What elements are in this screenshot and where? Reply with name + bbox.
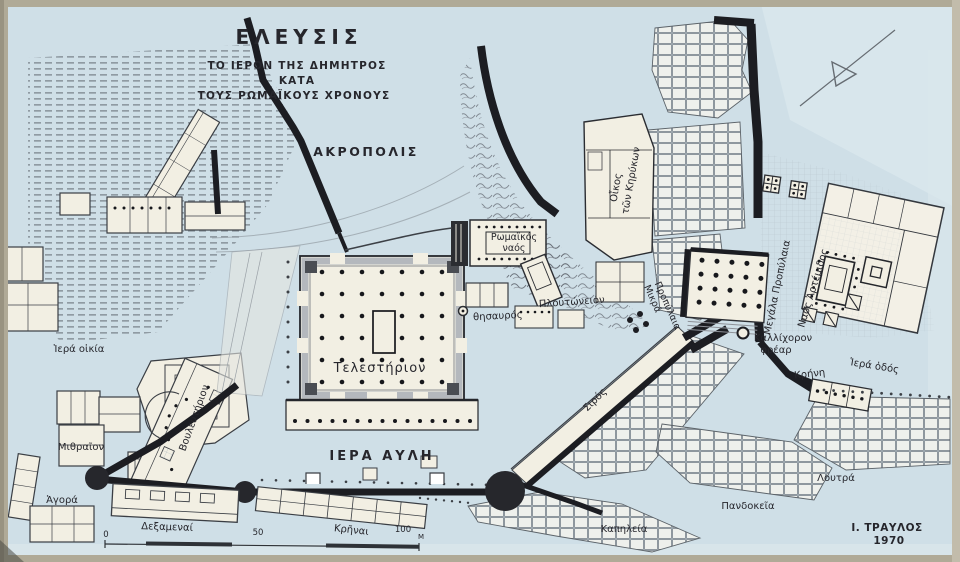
scale-unit: Μ: [418, 533, 424, 541]
credit-year: 1970: [873, 535, 904, 547]
map-subtitle-1: ΤΟ ΙΕΡΟΝ ΤΗΣ ΔΗΜΗΤΡΟΣ: [208, 60, 387, 72]
label-kallichoron-1: Καλλίχορον: [754, 332, 813, 344]
label-hiera-oikia: Ἱερά οἰκία: [54, 343, 105, 355]
label-telesterion: Τελεστήριον: [333, 361, 427, 376]
label-akropolis: ΑΚΡΟΠΟΛΙΣ: [313, 144, 419, 159]
dexamenai-building: [111, 484, 239, 523]
label-roman-temple-2: ναός: [503, 243, 526, 254]
scale-tick-100: 100: [395, 525, 411, 535]
plan-canvas: 0 50 100 Μ ΕΛΕΥΣΙΣ ΤΟ ΙΕΡΟΝ ΤΗΣ ΔΗΜΗΤΡΟΣ…: [0, 0, 960, 562]
label-mithraion: Μιθραῖον: [58, 442, 105, 453]
round-tower-west: [85, 466, 109, 490]
round-tower-main-gate: [485, 471, 525, 511]
altar-symbol-2: [789, 181, 807, 199]
label-kallichoron-2: φρέαρ: [760, 344, 791, 356]
label-roman-temple-1: Ρωμαϊκός: [491, 232, 537, 243]
scale-tick-0: 0: [103, 530, 108, 540]
kallichoron-well: [738, 328, 749, 339]
label-hiera-aule: ΙΕΡΑ ΑΥΛΗ: [329, 449, 434, 464]
anaktoron: [373, 311, 395, 353]
label-dexamenai: Δεξαμεναί: [141, 520, 194, 534]
eschara-altar: [861, 257, 892, 288]
label-loutra: Λουτρά: [817, 472, 855, 484]
eleusis-site-plan: 0 50 100 Μ ΕΛΕΥΣΙΣ ΤΟ ΙΕΡΟΝ ΤΗΣ ΔΗΜΗΤΡΟΣ…: [0, 0, 960, 562]
map-subtitle-3: ΤΟΥΣ ΡΩΜΑΪΚΟΥΣ ΧΡΟΝΟΥΣ: [198, 88, 391, 102]
scale-tick-50: 50: [253, 528, 264, 538]
altar-symbol-1: [763, 175, 781, 193]
map-title: ΕΛΕΥΣΙΣ: [235, 25, 362, 49]
label-agora: Ἀγορά: [46, 494, 78, 506]
label-pandokeia: Πανδοκεῖα: [721, 501, 775, 512]
map-subtitle-2: ΚΑΤΑ: [279, 75, 315, 87]
philon-portico: [286, 400, 478, 430]
label-kapeleia: Καπηλεία: [601, 523, 648, 535]
credit-author: Ι. ΤΡΑΥΛΟΣ: [851, 522, 922, 534]
telesterion-building: [297, 253, 467, 403]
